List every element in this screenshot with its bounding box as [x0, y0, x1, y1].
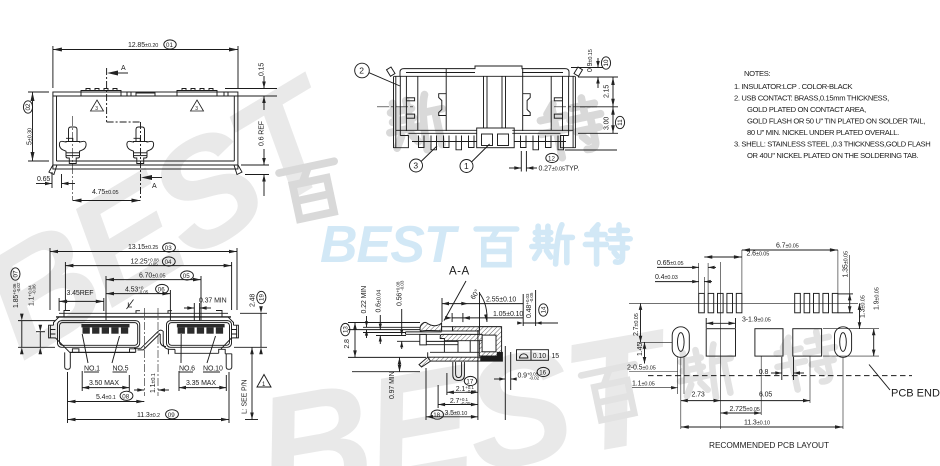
svg-text:12: 12: [548, 156, 555, 163]
svg-text:A-A: A-A: [449, 266, 470, 278]
svg-text:1.45: 1.45: [637, 343, 644, 356]
svg-text:2. USB CONTACT: BRASS,0.15mm T: 2. USB CONTACT: BRASS,0.15mm THICKNESS,: [734, 94, 889, 103]
svg-text:2.15: 2.15: [604, 85, 611, 98]
svg-text:6.05: 6.05: [759, 392, 772, 399]
svg-text:0.56+0.08-0.03: 0.56+0.08-0.03: [396, 280, 405, 306]
svg-text:6.7±0.05: 6.7±0.05: [776, 243, 799, 250]
svg-text:0.65±0.05: 0.65±0.05: [657, 260, 683, 267]
svg-text:1.1+0.04-0.06: 1.1+0.04-0.06: [28, 284, 37, 306]
svg-text:NO.6: NO.6: [179, 366, 195, 373]
svg-text:15: 15: [552, 353, 560, 360]
svg-text:1.05±0.10: 1.05±0.10: [493, 311, 523, 318]
svg-text:14: 14: [541, 306, 548, 313]
svg-text:2.1+0.1-0.05: 2.1+0.1-0.05: [456, 385, 477, 394]
svg-text:1. INSULATOR:LCP . COLOR-BLACK: 1. INSULATOR:LCP . COLOR-BLACK: [734, 82, 852, 91]
svg-text:06: 06: [158, 287, 165, 294]
svg-text:11: 11: [617, 119, 624, 126]
svg-text:2.8: 2.8: [344, 339, 351, 349]
svg-text:PCB END: PCB END: [891, 388, 940, 400]
svg-text:3. SHELL: STAINLESS STEEL ,0.3: 3. SHELL: STAINLESS STEEL ,0.3 THICKNESS…: [734, 140, 930, 149]
svg-text:L: SEE P/N: L: SEE P/N: [242, 380, 249, 414]
svg-text:18: 18: [433, 412, 440, 419]
svg-text:80 U" MIN. NICKEL UNDER PLATED: 80 U" MIN. NICKEL UNDER PLATED OVERALL.: [747, 128, 899, 137]
svg-text:0.37 MIN: 0.37 MIN: [199, 298, 227, 305]
svg-text:0.8: 0.8: [759, 369, 769, 376]
svg-text:13: 13: [343, 326, 350, 333]
svg-text:GOLD PLATED ON CONTACT AREA,: GOLD PLATED ON CONTACT AREA,: [747, 105, 866, 114]
svg-text:2: 2: [359, 66, 364, 76]
svg-text:2.7+0.1-0.05: 2.7+0.1-0.05: [450, 397, 471, 406]
svg-text:1.35±0.05: 1.35±0.05: [843, 251, 850, 277]
svg-text:01: 01: [166, 42, 173, 49]
svg-text:0.9±0.15: 0.9±0.15: [587, 49, 594, 72]
svg-text:2.73: 2.73: [692, 392, 705, 399]
svg-text:0.48+0.03-0.05: 0.48+0.03-0.05: [525, 292, 534, 318]
svg-text:1.3±0.05: 1.3±0.05: [860, 295, 867, 318]
svg-text:4.75±0.05: 4.75±0.05: [92, 189, 118, 196]
svg-text:RECOMMENDED PCB LAYOUT: RECOMMENDED PCB LAYOUT: [709, 440, 829, 450]
svg-text:5±0.30: 5±0.30: [27, 128, 34, 145]
svg-text:3: 3: [413, 161, 418, 171]
svg-text:1: 1: [464, 161, 469, 171]
svg-text:3: 3: [195, 106, 198, 112]
svg-text:3-1.9±0.05: 3-1.9±0.05: [742, 316, 771, 323]
svg-text:0.9+0.05-0.02: 0.9+0.05-0.02: [518, 372, 540, 381]
svg-text:5.4±0.1: 5.4±0.1: [96, 394, 116, 401]
svg-text:0.27±0.05TYP.: 0.27±0.05TYP.: [539, 166, 580, 173]
svg-text:NO.1: NO.1: [84, 366, 100, 373]
svg-text:2.48: 2.48: [250, 294, 257, 307]
svg-text:07: 07: [13, 270, 20, 277]
svg-text:1.85+0.06-0.02: 1.85+0.06-0.02: [12, 282, 21, 308]
svg-text:05: 05: [183, 273, 190, 280]
svg-text:NOTES:: NOTES:: [744, 69, 770, 78]
svg-text:16: 16: [539, 369, 546, 376]
svg-text:10: 10: [603, 59, 610, 66]
svg-text:6.70±0.05: 6.70±0.05: [139, 273, 165, 280]
svg-text:3.00: 3.00: [604, 117, 611, 130]
svg-text:OR 40U" NICKEL PLATED ON THE S: OR 40U" NICKEL PLATED ON THE SOLDERING T…: [747, 151, 918, 160]
svg-text:0.10: 0.10: [533, 353, 546, 360]
svg-text:0.6 REF: 0.6 REF: [259, 121, 266, 146]
svg-text:0.65: 0.65: [37, 176, 50, 183]
svg-text:0.97 MIN: 0.97 MIN: [389, 371, 396, 399]
svg-text:NO.10: NO.10: [203, 366, 223, 373]
svg-text:3: 3: [95, 106, 98, 112]
svg-text:08: 08: [122, 393, 129, 400]
svg-text:12.25+0.08-0.05: 12.25+0.08-0.05: [131, 258, 160, 267]
svg-text:1.1±0.05: 1.1±0.05: [632, 381, 655, 388]
svg-text:1.9±0.05: 1.9±0.05: [874, 287, 881, 310]
svg-text:0.6±0.04: 0.6±0.04: [375, 290, 382, 313]
svg-text:2.6±0.05: 2.6±0.05: [747, 251, 770, 258]
svg-text:A: A: [152, 183, 157, 190]
svg-text:0.22 MIN: 0.22 MIN: [361, 286, 368, 314]
svg-text:11.3±0.10: 11.3±0.10: [744, 420, 770, 427]
svg-text:02: 02: [25, 103, 32, 110]
svg-text:1.1±0.1: 1.1±0.1: [150, 373, 157, 393]
svg-text:0.4±0.03: 0.4±0.03: [655, 274, 678, 281]
svg-text:04: 04: [165, 259, 172, 266]
svg-text:GOLD FLASH OR 50 U" TIN PLATED: GOLD FLASH OR 50 U" TIN PLATED ON SOLDER…: [747, 117, 925, 126]
svg-text:03: 03: [165, 245, 172, 252]
svg-text:2.7±0.05: 2.7±0.05: [633, 313, 640, 336]
svg-text:0.15: 0.15: [259, 63, 266, 76]
svg-text:3.5±0.10: 3.5±0.10: [445, 410, 468, 417]
svg-text:A: A: [121, 65, 126, 72]
svg-text:2.55±0.10: 2.55±0.10: [486, 297, 516, 304]
svg-text:NO.5: NO.5: [113, 366, 129, 373]
svg-text:19: 19: [259, 294, 266, 301]
svg-text:3.50 MAX: 3.50 MAX: [89, 380, 119, 387]
svg-text:2-0.5±0.05: 2-0.5±0.05: [627, 365, 656, 372]
svg-text:3.35 MAX: 3.35 MAX: [186, 380, 216, 387]
svg-text:11.3±0.2: 11.3±0.2: [137, 412, 160, 419]
svg-text:BEST: BEST: [320, 216, 460, 274]
svg-text:09: 09: [168, 412, 175, 419]
svg-text:12.85±0.20: 12.85±0.20: [128, 42, 158, 49]
svg-text:2.725±0.05: 2.725±0.05: [730, 406, 760, 413]
svg-text:3.45REF: 3.45REF: [67, 290, 94, 297]
svg-text:13.15±0.25: 13.15±0.25: [128, 244, 158, 251]
